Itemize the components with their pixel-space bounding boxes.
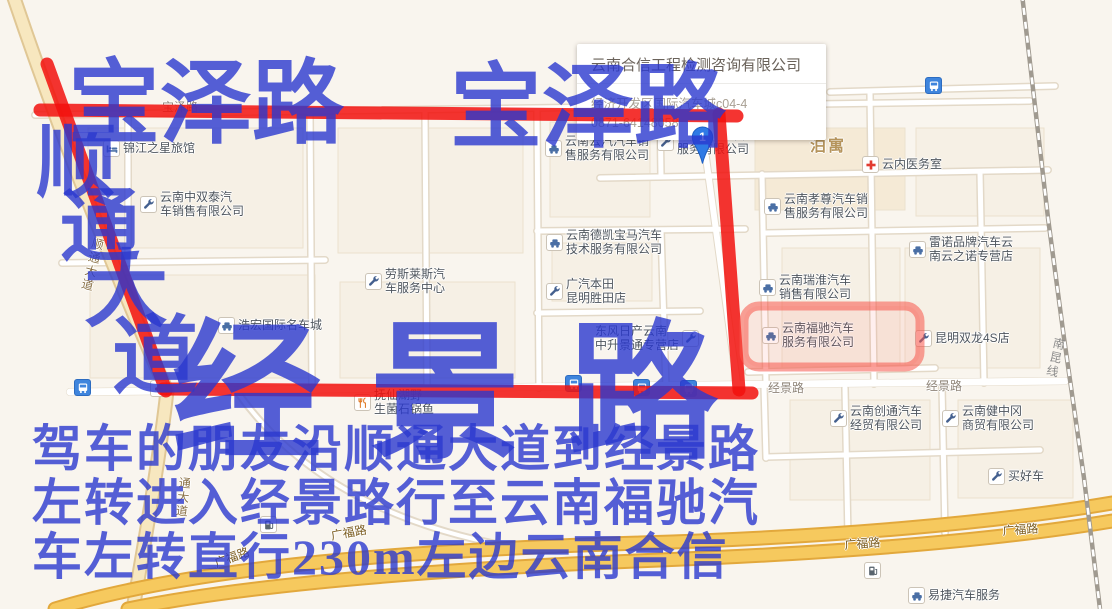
map-poi[interactable]: 昆明双龙4S店 [915, 330, 1010, 347]
map-poi[interactable]: 云南创通汽车经贸有限公司 [830, 405, 922, 432]
car-icon [759, 279, 776, 296]
bus-icon [680, 380, 697, 397]
road-label: 经景路 [768, 382, 804, 395]
car-icon [546, 234, 563, 251]
map-poi[interactable]: 劳斯莱斯汽车服务中心 [365, 268, 445, 295]
map-poi[interactable]: 泊寓 [810, 140, 846, 154]
map-poi[interactable] [925, 77, 942, 94]
route-line-shuntong [47, 64, 166, 391]
poi-label: 泊寓 [810, 140, 846, 154]
map-poi[interactable] [74, 379, 91, 396]
wrench-icon [915, 330, 932, 347]
popup-address: 经济开发区国际汽车城c04-4 [577, 91, 826, 114]
city-blocks [88, 122, 1073, 500]
wrench-icon [365, 273, 382, 290]
bus-icon [925, 77, 942, 94]
route-instructions-line: 车左转直行230m左边云南合信 [32, 532, 729, 582]
gas-icon [260, 516, 277, 533]
railway-line [1022, 0, 1100, 609]
poi-label: 云南健中冈商贸有限公司 [962, 405, 1034, 432]
wrench-icon [682, 330, 699, 347]
wrench-icon [942, 410, 959, 427]
map-marker-pin[interactable]: 1 [691, 126, 714, 165]
map-poi[interactable]: 云南健中冈商贸有限公司 [942, 405, 1034, 432]
bus-icon [565, 375, 582, 392]
road-label: 广福路 [213, 546, 251, 571]
map-poi[interactable] [260, 516, 277, 533]
poi-label: 东风日产云南中升景通专营店 [595, 325, 679, 352]
poi-label: 云南福驰汽车服务有限公司 [782, 322, 854, 349]
traffic-light-icon [150, 380, 167, 397]
poi-label: 雷诺品牌汽车云南云之诺专营店 [929, 236, 1013, 263]
poi-label: 易捷汽车服务 [928, 589, 1000, 603]
map-poi[interactable]: 云南福驰汽车服务有限公司 [762, 322, 854, 349]
hospital-icon [862, 156, 879, 173]
poi-label: 抚仙湖野生菌石锅鱼 [374, 389, 434, 416]
poi-label: 云南孝尊汽车销售服务有限公司 [784, 193, 868, 220]
road-label: 宝泽路 [162, 101, 198, 114]
wrench-icon [988, 468, 1005, 485]
poi-label: 买好车 [1008, 470, 1044, 484]
map-poi[interactable]: 锦江之星旅馆 [103, 140, 195, 157]
car-icon [545, 140, 562, 157]
map-poi[interactable]: 浩宏国际名车城 [218, 317, 322, 334]
road-label: 广福路 [844, 536, 881, 551]
map-poi[interactable]: 东风日产云南中升景通专营店 [595, 325, 699, 352]
popup-divider [577, 83, 826, 84]
map-poi[interactable] [150, 380, 167, 397]
bus-icon [633, 379, 650, 396]
wrench-icon [546, 283, 563, 300]
shuntong-avenue [12, 0, 167, 609]
route-instructions-line: 驾车的朋友沿顺通大道到经景路 [32, 424, 760, 474]
marker-number: 1 [691, 130, 714, 144]
map-poi[interactable]: 雷诺品牌汽车云南云之诺专营店 [909, 236, 1013, 263]
map-poi[interactable]: 易捷汽车服务 [908, 587, 1000, 604]
road-label: 通大道 [174, 476, 191, 519]
wrench-icon [140, 196, 157, 213]
map-poi[interactable]: 云南瑞淮汽车销售有限公司 [759, 274, 851, 301]
wrench-icon [830, 410, 847, 427]
car-icon [909, 241, 926, 258]
poi-label: 广汽本田昆明胜田店 [566, 278, 626, 305]
car-icon [762, 327, 779, 344]
gas-icon [864, 562, 881, 579]
car-icon [908, 587, 925, 604]
map-poi[interactable]: 云南中双泰汽车销售有限公司 [140, 191, 244, 218]
route-road-name-annotation: 顺 [36, 124, 116, 204]
poi-label: 云南中双泰汽车销售有限公司 [160, 191, 244, 218]
map-poi[interactable]: 广汽本田昆明胜田店 [546, 278, 626, 305]
road-label: 经景路 [926, 380, 962, 393]
poi-label: 浩宏国际名车城 [238, 319, 322, 333]
route-line-jingjing [163, 389, 752, 393]
route-instructions-line: 左转进入经景路行至云南福驰汽 [32, 478, 760, 528]
poi-label: 云南德凯宝马汽车技术服务有限公司 [566, 229, 662, 256]
road-label: 顺通大道 [78, 236, 104, 293]
road-label: 广福路 [1002, 522, 1039, 537]
car-icon [764, 198, 781, 215]
map-poi[interactable]: 买好车 [988, 468, 1044, 485]
poi-label: 昆明双龙4S店 [935, 332, 1010, 346]
road-label: 广福路 [330, 524, 368, 543]
map-poi[interactable] [565, 375, 582, 392]
map-poi[interactable]: 云南孝尊汽车销售服务有限公司 [764, 193, 868, 220]
map-poi[interactable] [680, 380, 697, 397]
restaurant-icon [354, 394, 371, 411]
poi-label: 云南创通汽车经贸有限公司 [850, 405, 922, 432]
popup-title: 云南合信工程检测咨询有限公司 [577, 54, 826, 83]
poi-label: 云南瑞淮汽车销售有限公司 [779, 274, 851, 301]
map-poi[interactable]: 云内医务室 [862, 156, 942, 173]
poi-label: 云内医务室 [882, 158, 942, 172]
map-canvas[interactable]: 宝泽路顺通大道通大道经景路经景路广福路广福路广福路广福路南昆线 锦江之星旅馆云南… [0, 0, 1112, 609]
poi-label: 锦江之星旅馆 [123, 142, 195, 156]
map-poi[interactable]: 抚仙湖野生菌石锅鱼 [354, 389, 434, 416]
road-label: 南昆线 [1044, 336, 1066, 380]
bus-icon [74, 379, 91, 396]
map-poi[interactable] [864, 562, 881, 579]
poi-label: 劳斯莱斯汽车服务中心 [385, 268, 445, 295]
car-icon [218, 317, 235, 334]
route-road-name-annotation: 宝泽路 [68, 58, 344, 150]
map-poi[interactable] [633, 379, 650, 396]
map-poi[interactable]: 云南德凯宝马汽车技术服务有限公司 [546, 229, 662, 256]
hotel-icon [103, 140, 120, 157]
